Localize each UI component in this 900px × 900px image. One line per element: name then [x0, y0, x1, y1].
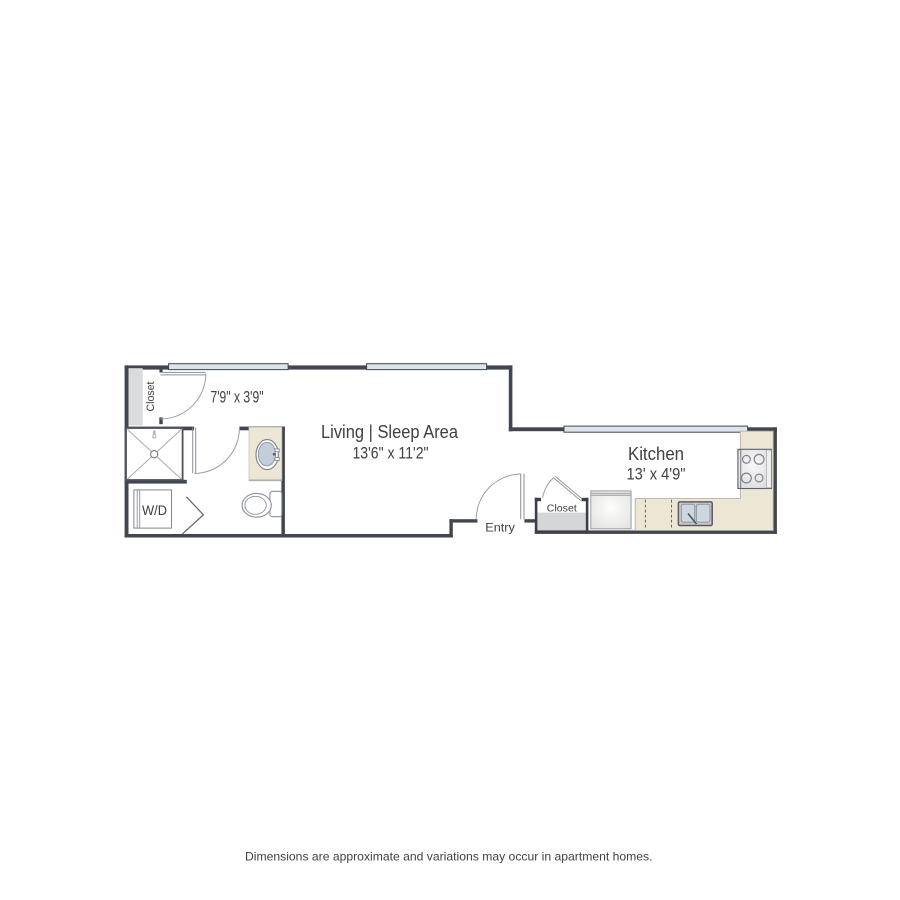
svg-text:Kitchen: Kitchen: [628, 444, 684, 464]
svg-text:13' x 4'9": 13' x 4'9": [627, 466, 686, 484]
svg-text:13'6" x 11'2": 13'6" x 11'2": [353, 445, 429, 463]
svg-text:Closet: Closet: [145, 382, 157, 412]
svg-text:Dimensions are approximate and: Dimensions are approximate and variation…: [245, 850, 653, 864]
svg-text:Closet: Closet: [547, 502, 577, 514]
svg-text:7'9" x 3'9": 7'9" x 3'9": [211, 389, 264, 407]
svg-text:W/D: W/D: [142, 503, 167, 518]
svg-text:Living | Sleep Area: Living | Sleep Area: [321, 422, 459, 442]
svg-text:Entry: Entry: [485, 523, 515, 535]
